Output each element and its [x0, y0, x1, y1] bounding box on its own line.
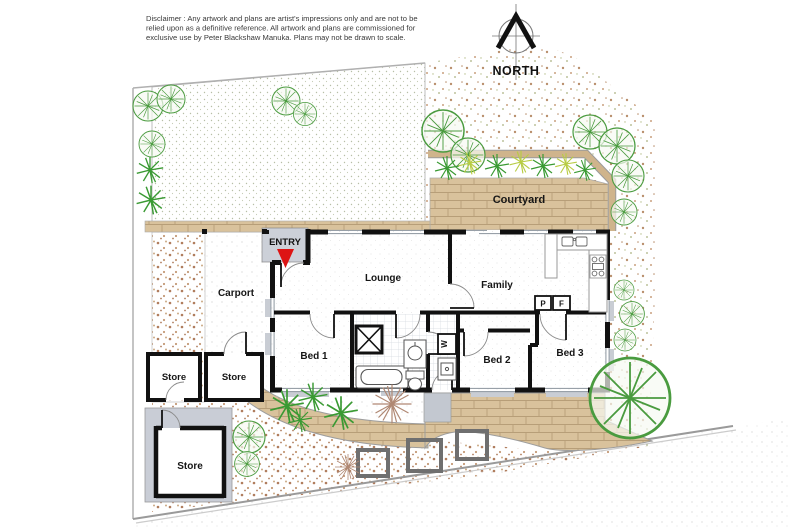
- vanity-basin: [404, 340, 426, 368]
- store-detached-label: Store: [177, 461, 203, 472]
- tree: [620, 302, 645, 327]
- disclaimer-line-1: Disclaimer : Any artwork and plans are a…: [146, 14, 418, 23]
- tree: [611, 199, 637, 225]
- courtyard-label: Courtyard: [493, 194, 546, 206]
- disclaimer-text: Disclaimer : Any artwork and plans are a…: [146, 14, 418, 42]
- tree: [293, 102, 316, 125]
- bathtub: [356, 366, 408, 388]
- site-plan-page: ENTRY: [0, 0, 790, 527]
- cooktop-icon: [590, 255, 606, 278]
- washer-label: W: [440, 340, 449, 348]
- house: ENTRY: [262, 228, 614, 422]
- store-detached: Store: [145, 408, 232, 502]
- disclaimer-line-2: relied upon as a definitive reference. A…: [146, 24, 416, 33]
- floor-plan: ENTRY: [0, 0, 790, 527]
- shower-box: [356, 326, 382, 353]
- tree: [157, 85, 185, 113]
- carport-post: [202, 229, 207, 234]
- north-label: NORTH: [493, 64, 540, 78]
- room-label-bed3: Bed 3: [556, 348, 584, 359]
- fridge-label: F: [559, 300, 564, 309]
- tree: [235, 452, 260, 477]
- room-label-lounge: Lounge: [365, 273, 402, 284]
- room-label-family: Family: [481, 280, 513, 291]
- laundry-trough: [438, 358, 456, 380]
- room-label-bed1: Bed 1: [300, 351, 328, 362]
- tree: [614, 329, 636, 351]
- tree: [599, 128, 635, 164]
- tree: [614, 280, 634, 300]
- carport-post: [262, 229, 267, 234]
- laundry-step: [424, 393, 451, 422]
- tree: [590, 358, 670, 438]
- tree: [139, 131, 165, 157]
- store-right-label: Store: [222, 372, 246, 383]
- room-label-bed2: Bed 2: [483, 355, 511, 366]
- pantry-label: P: [540, 300, 546, 309]
- tree: [612, 160, 644, 192]
- tree: [233, 421, 265, 453]
- north-arrow: NORTH: [492, 4, 540, 80]
- entry-label: ENTRY: [269, 237, 302, 248]
- store-left: Store: [148, 352, 200, 402]
- kitchen-counter-peninsula: [545, 234, 557, 278]
- carport-label: Carport: [218, 288, 255, 299]
- store-left-label: Store: [162, 372, 186, 383]
- disclaimer-line-3: exclusive use by Peter Blackshaw Manuka.…: [146, 33, 406, 42]
